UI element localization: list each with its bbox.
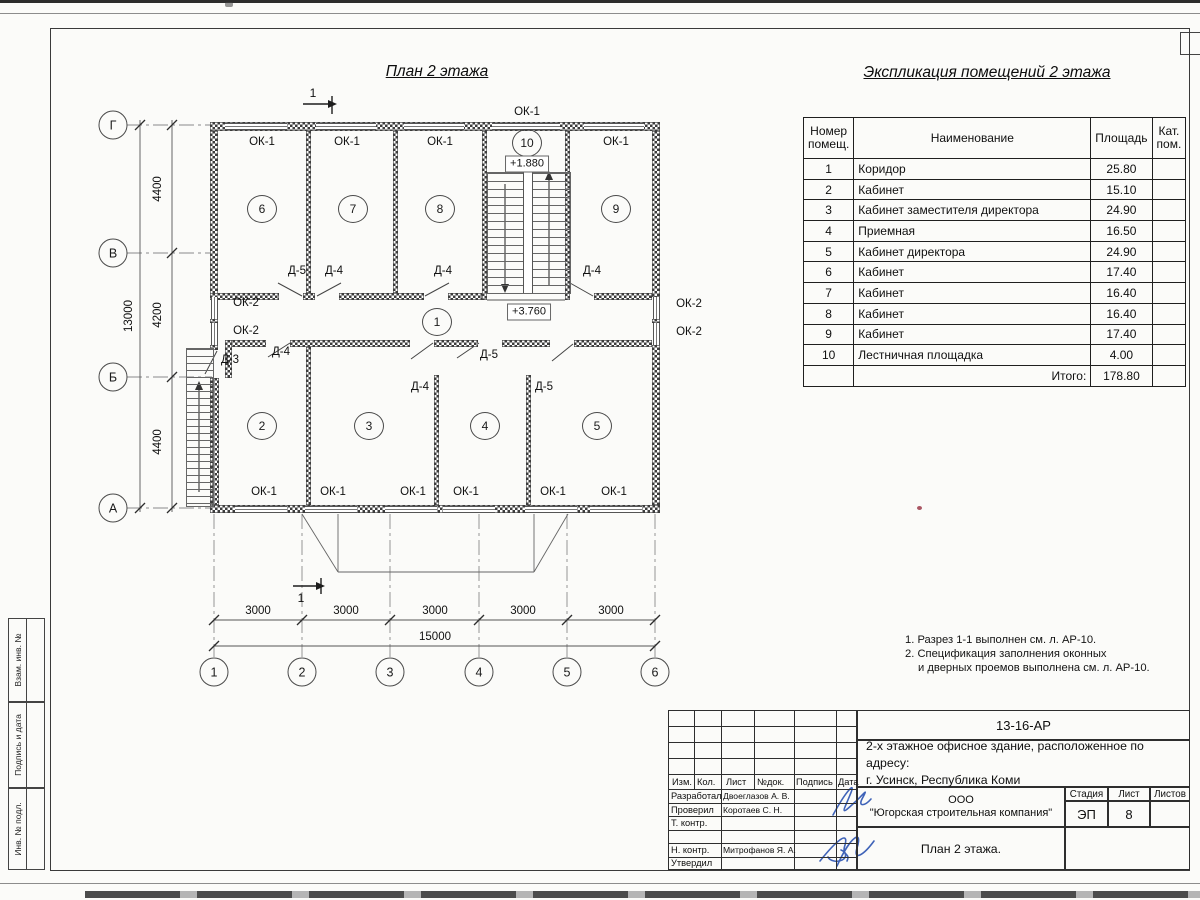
stamp-col-list: Лист — [726, 777, 746, 787]
room-name: Кабинет — [854, 262, 1091, 283]
door-label: Д-4 — [272, 346, 290, 358]
dim-bay: 3000 — [422, 605, 448, 617]
room-area: 15.10 — [1091, 179, 1152, 200]
partition — [434, 340, 478, 347]
room-circle-7: 7 — [338, 195, 368, 223]
room-number: 6 — [804, 262, 854, 283]
window-label: ОК-2 — [676, 298, 702, 310]
room-area: 25.80 — [1091, 159, 1152, 180]
wall-exterior-left — [210, 131, 218, 297]
total-value: 178.80 — [1091, 365, 1152, 386]
dim-total-width: 15000 — [419, 631, 451, 643]
section-mark-label: 1 — [298, 591, 305, 605]
partition — [290, 340, 410, 347]
plan-title: План 2 этажа — [386, 63, 489, 81]
axis-bubble-v: В — [99, 239, 128, 268]
table-row: 9Кабинет17.40 — [804, 324, 1186, 345]
partition — [502, 340, 550, 347]
table-row: 10Лестничная площадка4.00 — [804, 345, 1186, 366]
stamp-grid-line — [668, 789, 857, 790]
stamp-role: Проверил — [671, 805, 714, 815]
room-circle-2: 2 — [247, 412, 277, 440]
room-cat — [1152, 241, 1186, 262]
axis-bubble-3: 3 — [376, 658, 405, 687]
stamp-col-kol: Кол. — [697, 777, 715, 787]
door-label: Д-4 — [434, 265, 452, 277]
table-total-row: Итого:178.80 — [804, 365, 1186, 386]
window-ok1 — [305, 506, 357, 513]
window-label: ОК-1 — [514, 106, 540, 118]
room-number: 4 — [804, 221, 854, 242]
col-header-name: Наименование — [854, 118, 1091, 159]
window-label: ОК-1 — [427, 136, 453, 148]
room-name: Коридор — [854, 159, 1091, 180]
window-label: ОК-1 — [453, 486, 479, 498]
window-ok1 — [404, 123, 464, 130]
axis-bubble-6: 6 — [641, 658, 670, 687]
sidebar-box-podpis: Подпись и дата — [8, 702, 27, 788]
stamp-role: Н. контр. — [671, 845, 709, 855]
room-number: 1 — [804, 159, 854, 180]
room-cat — [1152, 283, 1186, 304]
room-area: 4.00 — [1091, 345, 1152, 366]
window-ok1 — [235, 506, 287, 513]
room-area: 16.40 — [1091, 283, 1152, 304]
room-circle-1: 1 — [422, 308, 452, 336]
stamp-col-izm: Изм. — [672, 777, 692, 787]
door-label: Д-5 — [535, 381, 553, 393]
room-number: 7 — [804, 283, 854, 304]
stamp-company: ООО"Югорская строительная компания" — [857, 787, 1065, 827]
stamp-grid-line — [668, 758, 857, 759]
partition — [306, 131, 311, 293]
room-circle-9: 9 — [601, 195, 631, 223]
room-cat — [1152, 221, 1186, 242]
window-label: ОК-1 — [334, 136, 360, 148]
explication-table: Номер помещ. Наименование Площадь Кат. п… — [803, 117, 1186, 387]
stamp-role: Т. контр. — [671, 818, 707, 828]
col-header-area: Площадь — [1091, 118, 1152, 159]
stamp-doc-title: 2-х этажное офисное здание, расположенно… — [857, 740, 1190, 787]
dim-bay: 3000 — [598, 605, 624, 617]
dim-left: 4400 — [152, 429, 164, 455]
stamp-role: Утвердил — [671, 858, 712, 868]
room-number: 9 — [804, 324, 854, 345]
table-row: 5Кабинет директора24.90 — [804, 241, 1186, 262]
dim-left: 4200 — [152, 302, 164, 328]
scan-edge-bottom — [85, 891, 1200, 898]
window-ok1 — [385, 506, 437, 513]
room-name: Кабинет директора — [854, 241, 1091, 262]
partition — [526, 375, 531, 505]
partition — [303, 293, 315, 300]
scan-smudge — [225, 2, 233, 7]
stamp-grid-line — [668, 830, 857, 831]
sidebar-box-vzam: Взам. инв. № — [8, 618, 27, 702]
window-ok1 — [590, 506, 642, 513]
stamp-sheets-label: Листов — [1150, 787, 1190, 801]
note-line: 2. Спецификация заполнения оконных — [905, 648, 1200, 662]
axis-bubble-a: А — [99, 494, 128, 523]
stamp-sheet-label: Лист — [1108, 787, 1150, 801]
stamp-col-data: Дата — [838, 777, 859, 787]
col-header-number: Номер помещ. — [804, 118, 854, 159]
sidebar-box-inv: Инв. № подл. — [8, 788, 27, 870]
room-area: 17.40 — [1091, 324, 1152, 345]
axis-bubble-g: Г — [99, 111, 128, 140]
window-ok1 — [525, 506, 577, 513]
window-ok1 — [316, 123, 376, 130]
level-mark-stair: +1.880 — [505, 156, 549, 173]
table-row: 1Коридор25.80 — [804, 159, 1186, 180]
stamp-empty-cell — [1065, 827, 1190, 870]
window-ok1 — [584, 123, 644, 130]
room-name: Кабинет — [854, 179, 1091, 200]
room-cat — [1152, 324, 1186, 345]
stamp-drawing-name: План 2 этажа. — [857, 827, 1065, 870]
room-name: Кабинет — [854, 303, 1091, 324]
room-area: 17.40 — [1091, 262, 1152, 283]
door-label: Д-5 — [288, 265, 306, 277]
stamp-grid-line — [668, 816, 857, 817]
window-ok2 — [653, 297, 660, 319]
stamp-sheets-value — [1150, 801, 1190, 827]
door-label: Д-4 — [325, 265, 343, 277]
room-circle-3: 3 — [354, 412, 384, 440]
stamp-name: Коротаев С. Н. — [723, 805, 782, 815]
stamp-grid-line — [668, 843, 857, 844]
room-area: 16.50 — [1091, 221, 1152, 242]
door-label: Д-5 — [480, 349, 498, 361]
room-circle-5: 5 — [582, 412, 612, 440]
window-ok2 — [653, 323, 660, 345]
room-circle-8: 8 — [425, 195, 455, 223]
partition — [434, 375, 439, 505]
room-name: Кабинет — [854, 324, 1091, 345]
room-circle-6: 6 — [247, 195, 277, 223]
window-label: ОК-1 — [540, 486, 566, 498]
stamp-col-podpis: Подпись — [796, 777, 833, 787]
room-area: 24.90 — [1091, 200, 1152, 221]
partition — [393, 131, 398, 293]
scan-line-top — [0, 13, 1200, 14]
dim-total-height: 13000 — [123, 300, 135, 332]
partition — [306, 347, 311, 505]
table-row: 8Кабинет16.40 — [804, 303, 1186, 324]
room-circle-10: 10 — [512, 129, 542, 157]
partition — [339, 293, 424, 300]
room-cat — [1152, 262, 1186, 283]
exterior-stair-treads — [186, 348, 214, 507]
wall-exterior-right — [652, 131, 660, 297]
table-row: 4Приемная16.50 — [804, 221, 1186, 242]
room-name: Кабинет — [854, 283, 1091, 304]
stamp-grid-line — [668, 803, 857, 804]
window-label: ОК-1 — [400, 486, 426, 498]
axis-bubble-2: 2 — [288, 658, 317, 687]
col-header-cat: Кат. пом. — [1152, 118, 1186, 159]
room-number: 2 — [804, 179, 854, 200]
total-label: Итого: — [854, 365, 1091, 386]
stamp-grid-line — [836, 710, 837, 870]
partition — [574, 340, 652, 347]
room-name: Приемная — [854, 221, 1091, 242]
room-area: 24.90 — [1091, 241, 1152, 262]
level-mark-floor: +3.760 — [507, 304, 551, 321]
door-label: Д-4 — [583, 265, 601, 277]
room-name: Кабинет заместителя директора — [854, 200, 1091, 221]
sidebar-box-empty — [26, 788, 45, 870]
note-line: 1. Разрез 1-1 выполнен см. л. АР-10. — [905, 634, 1200, 648]
dim-bay: 3000 — [333, 605, 359, 617]
stamp-name: Митрофанов Я. А. — [723, 845, 796, 855]
axis-bubble-4: 4 — [465, 658, 494, 687]
window-label: ОК-1 — [251, 486, 277, 498]
table-row: 7Кабинет16.40 — [804, 283, 1186, 304]
stamp-role: Разработал — [671, 791, 722, 801]
partition — [594, 293, 652, 300]
dim-left: 4400 — [152, 176, 164, 202]
section-mark-label: 1 — [310, 86, 317, 100]
room-cat — [1152, 303, 1186, 324]
room-number: 3 — [804, 200, 854, 221]
room-circle-4: 4 — [470, 412, 500, 440]
stamp-grid-line — [668, 726, 857, 727]
table-row: 6Кабинет17.40 — [804, 262, 1186, 283]
window-ok2 — [211, 323, 218, 345]
room-cat — [1152, 179, 1186, 200]
stamp-grid-line — [668, 742, 857, 743]
window-label: ОК-2 — [233, 325, 259, 337]
sidebar-box-empty — [26, 618, 45, 702]
window-label: ОК-1 — [603, 136, 629, 148]
partition — [448, 293, 482, 300]
stamp-stage-value: ЭП — [1065, 801, 1108, 827]
room-number: 5 — [804, 241, 854, 262]
stamp-col-ndok: №док. — [757, 777, 784, 787]
room-name: Лестничная площадка — [854, 345, 1091, 366]
room-cat — [1152, 200, 1186, 221]
stamp-grid-line — [694, 710, 695, 789]
window-label: ОК-1 — [320, 486, 346, 498]
dim-bay: 3000 — [245, 605, 271, 617]
room-area: 16.40 — [1091, 303, 1152, 324]
window-ok2 — [211, 297, 218, 319]
stamp-doc-number: 13-16-АР — [857, 710, 1190, 740]
stamp-grid-line — [668, 774, 857, 775]
table-row: 3Кабинет заместителя директора24.90 — [804, 200, 1186, 221]
door-label: Д-3 — [221, 354, 239, 366]
window-label: ОК-2 — [233, 297, 259, 309]
stamp-grid-line — [754, 710, 755, 789]
stamp-stage-label: Стадия — [1065, 787, 1108, 801]
room-cat — [1152, 345, 1186, 366]
table-row: 2Кабинет15.10 — [804, 179, 1186, 200]
window-label: ОК-2 — [676, 326, 702, 338]
axis-bubble-5: 5 — [553, 658, 582, 687]
door-label: Д-4 — [411, 381, 429, 393]
window-label: ОК-1 — [249, 136, 275, 148]
room-number: 8 — [804, 303, 854, 324]
window-label: ОК-1 — [601, 486, 627, 498]
window-ok1 — [225, 123, 287, 130]
stamp-sheet-value: 8 — [1108, 801, 1150, 827]
dim-bay: 3000 — [510, 605, 536, 617]
stamp-name: Двоеглазов А. В. — [723, 791, 790, 801]
note-line: и дверных проемов выполнена см. л. АР-10… — [905, 662, 1200, 676]
axis-bubble-1: 1 — [200, 658, 229, 687]
room-number: 10 — [804, 345, 854, 366]
scan-line-bottom — [0, 883, 1200, 884]
stair-rail — [523, 172, 533, 293]
sidebar-box-empty — [26, 702, 45, 788]
explication-title: Экспликация помещений 2 этажа — [863, 64, 1110, 82]
window-ok1 — [443, 506, 495, 513]
notes: 1. Разрез 1-1 выполнен см. л. АР-10. 2. … — [905, 634, 1200, 675]
wall-exterior-right — [652, 345, 660, 505]
stamp-grid-line — [721, 710, 722, 870]
room-cat — [1152, 159, 1186, 180]
drawing-sheet: План 2 этажа Экспликация помещений 2 эта… — [0, 0, 1200, 900]
axis-bubble-b: Б — [99, 363, 128, 392]
scan-edge-top — [0, 0, 1200, 3]
